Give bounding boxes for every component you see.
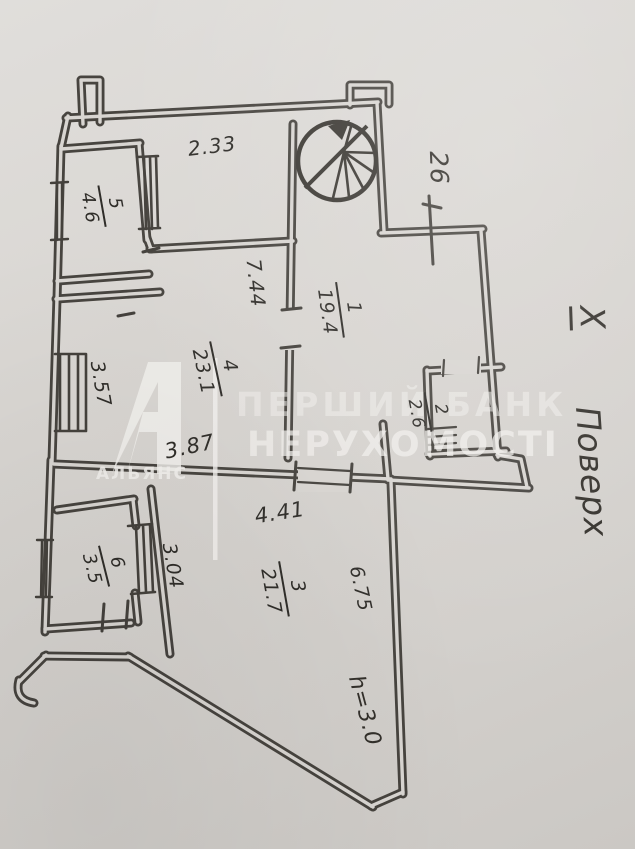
room-label-2: 22.6: [404, 389, 452, 436]
watermark-agency-name: АЛЬЯНС: [94, 466, 190, 483]
watermark-bank-line1: ПЕРШИЙ БАНК: [236, 388, 567, 421]
dimension-label: 7.44: [244, 258, 269, 308]
dimension-label: 2.33: [187, 133, 238, 159]
room-number: 5: [101, 192, 125, 216]
room-number: 1: [340, 296, 365, 320]
room-area: 2.6: [404, 392, 433, 435]
wall-mark-annotation: 26: [426, 151, 452, 186]
room-number: 3: [283, 575, 308, 600]
room-label-5: 54.6: [77, 182, 128, 231]
watermark-bank-line2: НЕРУХОМОСТІ: [247, 428, 559, 463]
paper-background: ПЕРШИЙ БАНК НЕРУХОМОСТІ АЛЬЯНС 119.4 22.…: [0, 0, 635, 849]
room-number: 2: [427, 399, 450, 422]
room-label-3: 321.7: [256, 557, 311, 620]
room-number: 4: [215, 354, 241, 379]
floor-word-annotation: Поверх: [571, 405, 613, 538]
spiral-stairs-icon: [298, 120, 376, 200]
room-area: 4.6: [77, 185, 107, 230]
room-area: 19.4: [313, 282, 345, 341]
room-label-1: 119.4: [313, 279, 366, 341]
floor-number-mark: X: [569, 305, 609, 331]
